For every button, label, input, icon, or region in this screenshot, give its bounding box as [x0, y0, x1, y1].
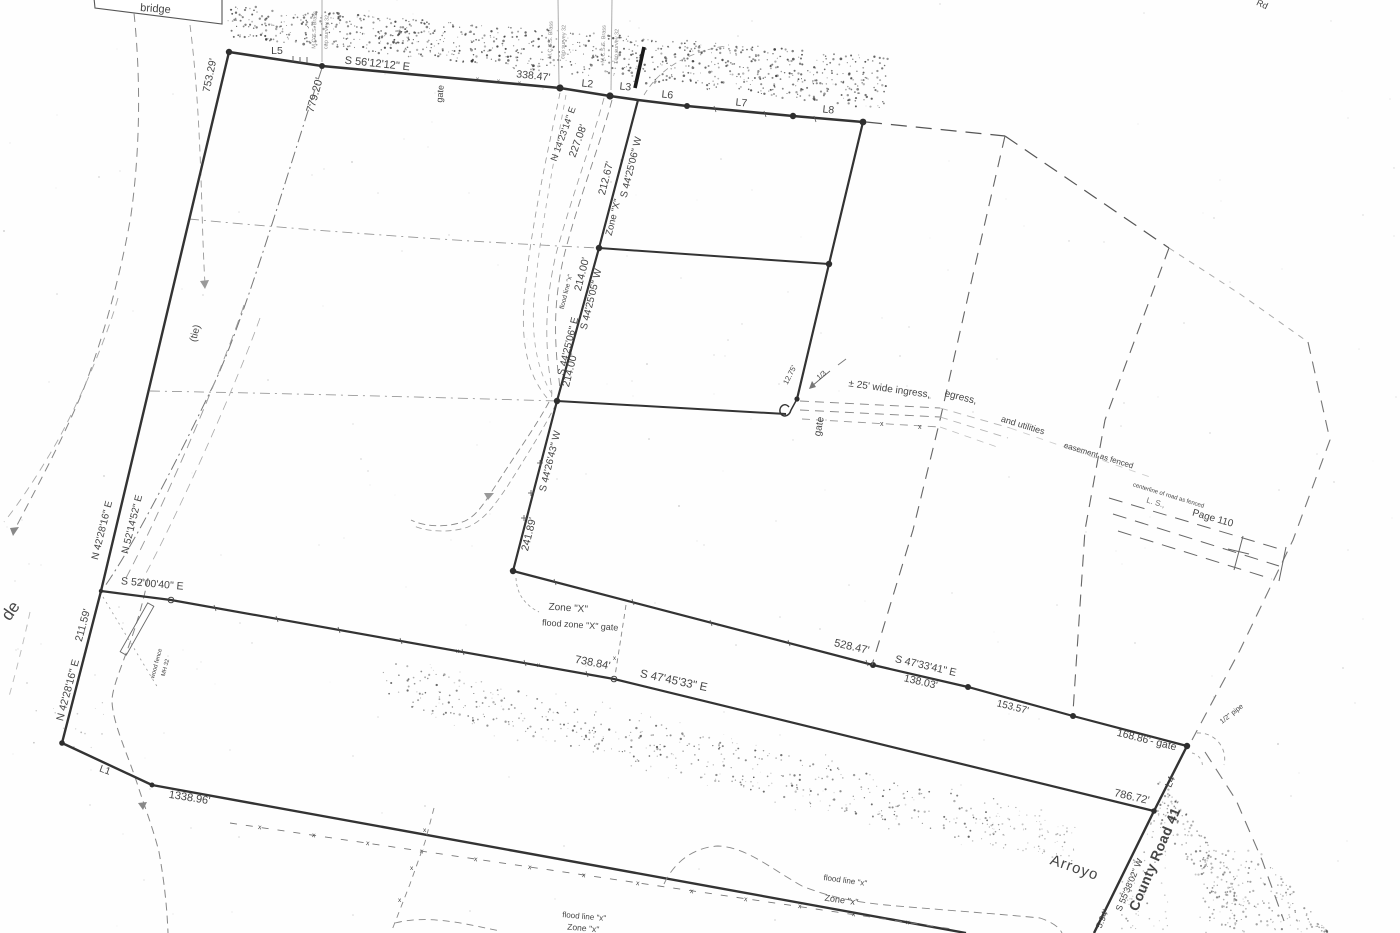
svg-text:gate: gate: [434, 85, 445, 103]
svg-text:L8: L8: [822, 103, 835, 116]
svg-text:x: x: [518, 81, 521, 87]
svg-text:L3: L3: [619, 80, 632, 93]
svg-text:L6: L6: [661, 88, 674, 101]
svg-text:cap survey 32: cap survey 32: [560, 25, 567, 59]
svg-text:x: x: [497, 79, 500, 85]
svg-text:Zone "x": Zone "x": [567, 922, 600, 933]
svg-text:x: x: [880, 421, 884, 428]
svg-text:cap survey 32: cap survey 32: [613, 29, 620, 63]
svg-text:L2: L2: [581, 77, 594, 90]
svg-text:x: x: [476, 77, 479, 83]
svg-text:x: x: [613, 656, 616, 662]
svg-text:L7: L7: [735, 96, 748, 109]
svg-text:L5: L5: [271, 45, 283, 57]
svg-text:bridge: bridge: [140, 2, 171, 16]
svg-text:cap survey 32: cap survey 32: [323, 15, 330, 49]
svg-text:x: x: [918, 424, 922, 431]
